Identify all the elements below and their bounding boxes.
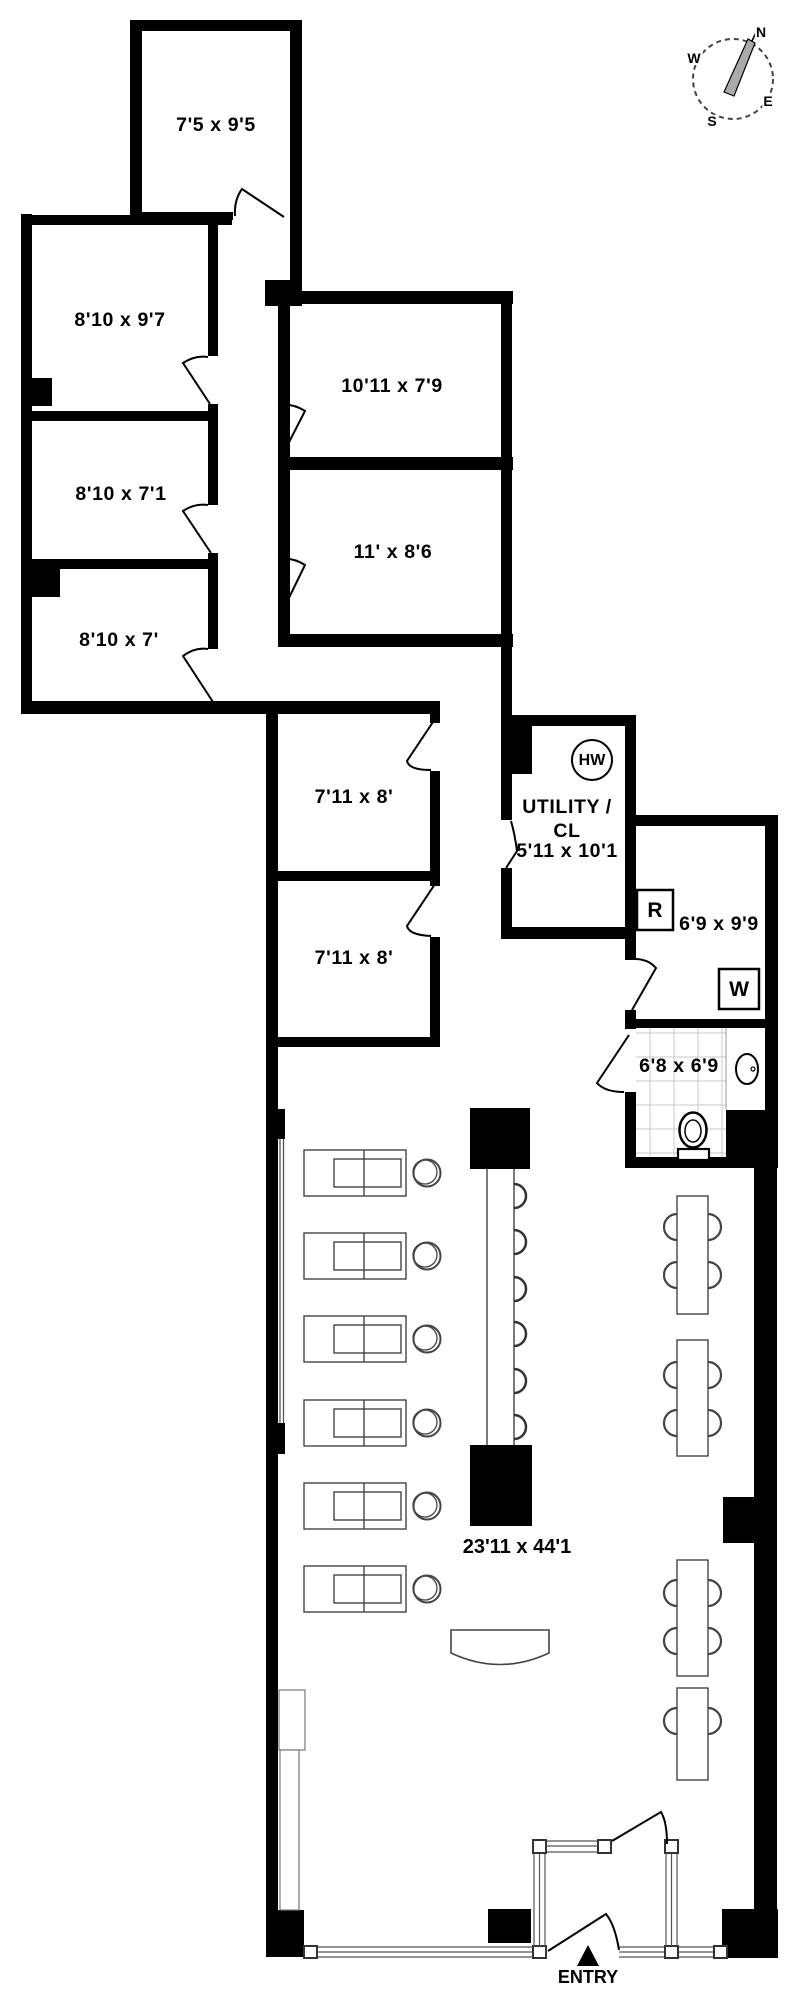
svg-text:HW: HW — [579, 752, 607, 769]
svg-text:UTILITY /: UTILITY / — [522, 796, 612, 818]
svg-text:8'10 x 7'1: 8'10 x 7'1 — [75, 483, 166, 505]
svg-text:7'11 x 8': 7'11 x 8' — [315, 947, 394, 969]
svg-text:S: S — [707, 113, 716, 129]
svg-text:7'5 x 9'5: 7'5 x 9'5 — [176, 114, 256, 136]
svg-text:W: W — [729, 978, 749, 1001]
svg-text:E: E — [763, 93, 772, 109]
svg-text:6'8 x 6'9: 6'8 x 6'9 — [639, 1055, 719, 1077]
svg-text:23'11 x 44'1: 23'11 x 44'1 — [463, 1536, 572, 1558]
svg-text:CL: CL — [553, 820, 580, 842]
svg-text:8'10 x 9'7: 8'10 x 9'7 — [74, 309, 165, 331]
svg-text:11' x 8'6: 11' x 8'6 — [354, 541, 433, 563]
svg-text:R: R — [647, 899, 662, 922]
svg-text:N: N — [756, 24, 766, 40]
svg-text:7'11 x 8': 7'11 x 8' — [315, 786, 394, 808]
svg-text:ENTRY: ENTRY — [558, 1967, 618, 1987]
svg-text:8'10 x 7': 8'10 x 7' — [79, 629, 159, 651]
svg-text:10'11 x 7'9: 10'11 x 7'9 — [341, 375, 443, 397]
svg-text:W: W — [687, 50, 701, 66]
svg-text:5'11 x 10'1: 5'11 x 10'1 — [516, 840, 618, 862]
svg-text:6'9 x 9'9: 6'9 x 9'9 — [679, 913, 759, 935]
